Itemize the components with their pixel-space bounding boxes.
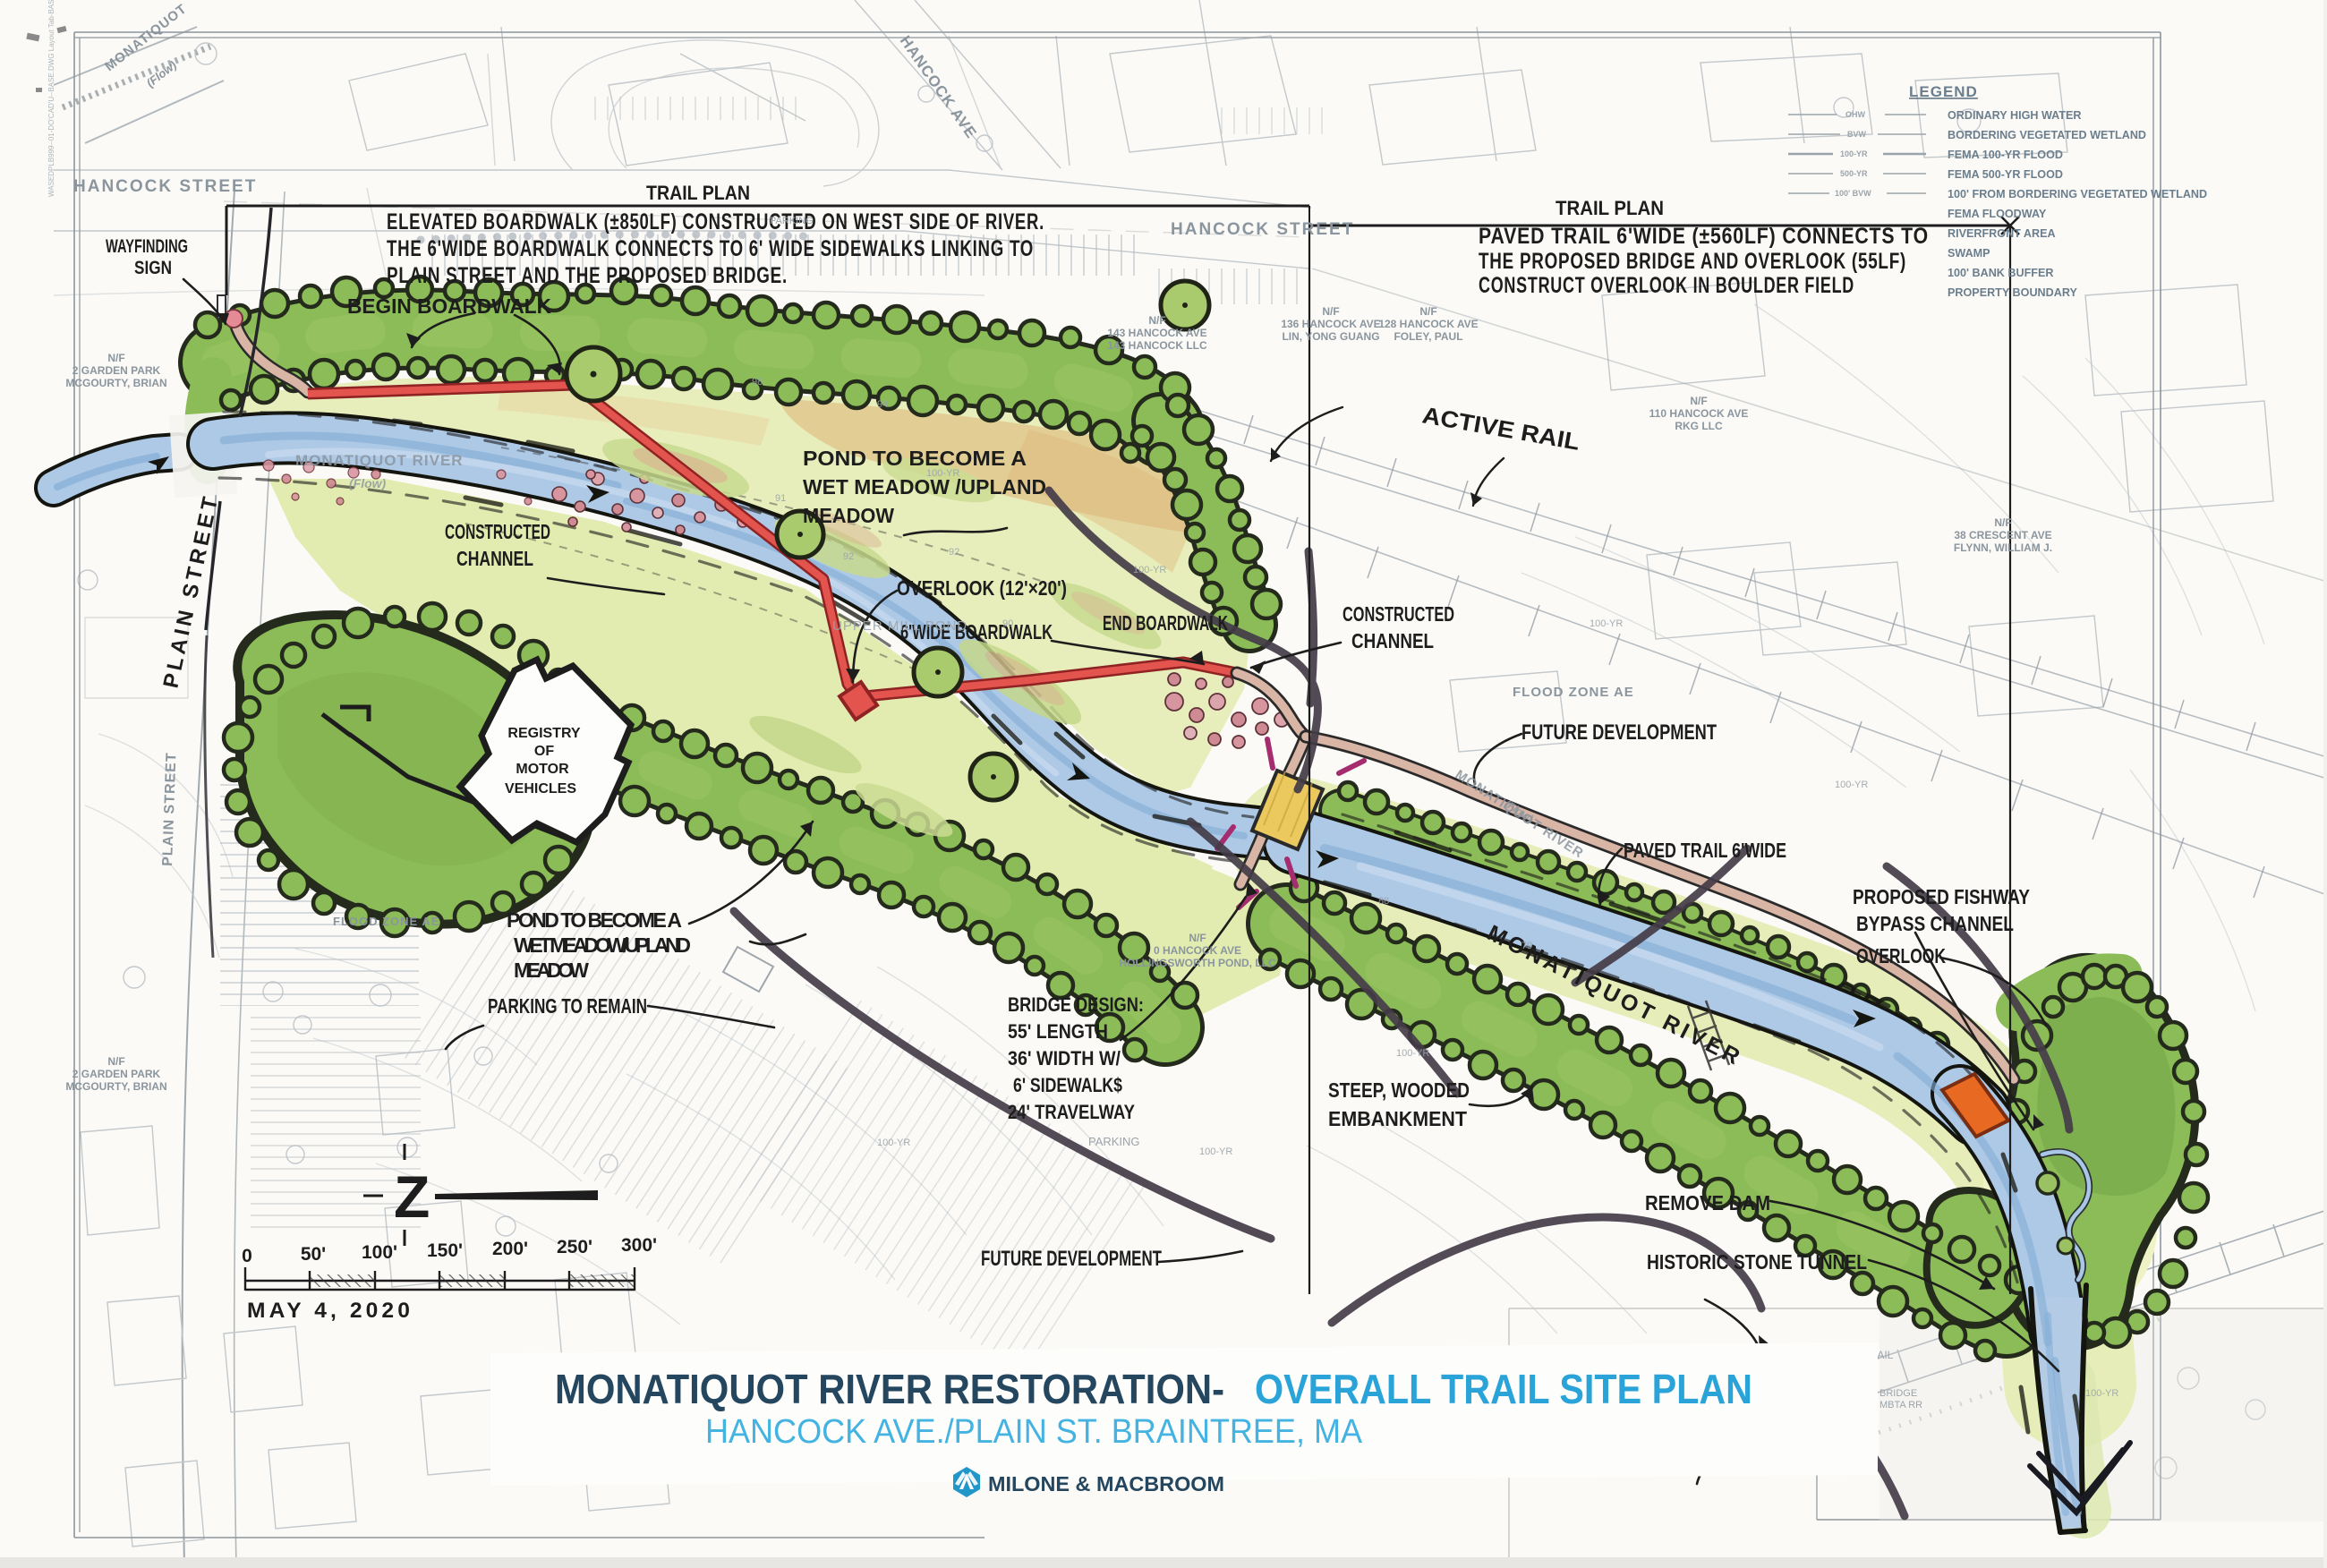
svg-text:100' BVW: 100' BVW xyxy=(1835,189,1871,198)
svg-text:100-YR: 100-YR xyxy=(1199,1146,1232,1157)
svg-text:N/F: N/F xyxy=(1148,314,1165,327)
svg-text:N/F: N/F xyxy=(107,352,124,364)
svg-text:BRIDGE DESIGN:: BRIDGE DESIGN: xyxy=(1008,993,1144,1016)
svg-text:FUTURE DEVELOPMENT: FUTURE DEVELOPMENT xyxy=(1521,720,1717,745)
svg-text:100-YR: 100-YR xyxy=(877,1138,910,1148)
svg-text:CONSTRUCT OVERLOOK IN BOULDER: CONSTRUCT OVERLOOK IN BOULDER FIELD xyxy=(1479,273,1854,298)
svg-text:136 HANCOCK AVE: 136 HANCOCK AVE xyxy=(1281,318,1380,330)
svg-text:143 HANCOCK LLC: 143 HANCOCK LLC xyxy=(1107,339,1207,352)
svg-text:POND TO BECOME A: POND TO BECOME A xyxy=(803,447,1027,470)
svg-text:2 GARDEN PARK: 2 GARDEN PARK xyxy=(72,364,161,377)
svg-text:100': 100' xyxy=(362,1242,397,1263)
svg-text:36' WIDTH W/: 36' WIDTH W/ xyxy=(1008,1047,1121,1069)
svg-text:TRAIL PLAN: TRAIL PLAN xyxy=(1556,197,1664,219)
svg-text:N/F: N/F xyxy=(1189,932,1206,944)
svg-text:98: 98 xyxy=(752,377,763,388)
svg-text:N/F: N/F xyxy=(107,1055,124,1068)
svg-text:PROPERTY BOUNDARY: PROPERTY BOUNDARY xyxy=(1948,286,2077,299)
svg-text:WET MEADOW /UPLAND: WET MEADOW /UPLAND xyxy=(803,475,1046,499)
svg-text:100-YR: 100-YR xyxy=(1835,780,1868,790)
svg-text:100' FROM BORDERING VEGETATED: 100' FROM BORDERING VEGETATED WETLAND xyxy=(1948,188,2207,200)
svg-text:HANCOCK STREET: HANCOCK STREET xyxy=(73,177,257,196)
svg-text:N/F: N/F xyxy=(1419,305,1436,318)
svg-text:55' LENGTH: 55' LENGTH xyxy=(1008,1020,1108,1043)
svg-text:RIVERFRONT AREA: RIVERFRONT AREA xyxy=(1948,227,2056,240)
svg-text:ORDINARY HIGH WATER: ORDINARY HIGH WATER xyxy=(1948,109,2082,122)
svg-text:MCGOURTY, BRIAN: MCGOURTY, BRIAN xyxy=(65,1080,166,1093)
svg-text:HANCOCK STREET: HANCOCK STREET xyxy=(1171,220,1354,239)
svg-text:100-YR: 100-YR xyxy=(926,468,959,479)
svg-text:88: 88 xyxy=(1378,896,1389,907)
svg-text:94: 94 xyxy=(877,399,888,410)
svg-text:110 HANCOCK AVE: 110 HANCOCK AVE xyxy=(1649,407,1749,420)
svg-text:143 HANCOCK AVE: 143 HANCOCK AVE xyxy=(1107,327,1206,339)
svg-text:LEGEND: LEGEND xyxy=(1909,83,1978,100)
svg-text:RKG LLC: RKG LLC xyxy=(1675,420,1723,432)
svg-text:PROPOSED FISHWAY: PROPOSED FISHWAY xyxy=(1853,885,2030,908)
svg-text:300': 300' xyxy=(621,1235,657,1256)
svg-text:38 CRESCENT AVE: 38 CRESCENT AVE xyxy=(1954,529,2051,541)
svg-text:REGISTRY: REGISTRY xyxy=(507,726,581,741)
svg-text:100-YR: 100-YR xyxy=(1590,618,1623,629)
svg-text:0 HANCOCK AVE: 0 HANCOCK AVE xyxy=(1154,944,1241,957)
svg-text:500-YR: 500-YR xyxy=(1840,169,1868,178)
svg-text:BORDERING VEGETATED WETLAND: BORDERING VEGETATED WETLAND xyxy=(1948,129,2146,141)
svg-text:PAVED TRAIL 6'WIDE: PAVED TRAIL 6'WIDE xyxy=(1624,839,1786,862)
svg-text:2 GARDEN PARK: 2 GARDEN PARK xyxy=(72,1068,161,1080)
svg-text:128 HANCOCK AVE: 128 HANCOCK AVE xyxy=(1378,318,1478,330)
svg-text:WASEDPLB999--01-DO'CAD'U--BASE: WASEDPLB999--01-DO'CAD'U--BASE.DWG Layou… xyxy=(47,0,55,197)
svg-text:N/F: N/F xyxy=(1322,305,1339,318)
svg-text:FEMA 500-YR FLOOD: FEMA 500-YR FLOOD xyxy=(1948,168,2063,181)
svg-text:Z: Z xyxy=(394,1163,430,1230)
svg-text:100-YR: 100-YR xyxy=(1396,1048,1429,1059)
svg-text:100' BANK BUFFER: 100' BANK BUFFER xyxy=(1948,267,2053,279)
svg-text:FLOOD ZONE AE: FLOOD ZONE AE xyxy=(333,915,439,928)
svg-text:MCGOURTY, BRIAN: MCGOURTY, BRIAN xyxy=(65,377,166,389)
svg-text:90: 90 xyxy=(1002,618,1013,629)
svg-text:OHW: OHW xyxy=(1845,110,1866,119)
svg-text:ELEVATED BOARDWALK (±850LF) CO: ELEVATED BOARDWALK (±850LF) CONSTRUCTED … xyxy=(387,209,1044,234)
svg-text:END BOARDWALK: END BOARDWALK xyxy=(1103,611,1228,635)
svg-text:UPPER MILL POND: UPPER MILL POND xyxy=(832,618,967,634)
svg-text:6' SIDEWALK$: 6' SIDEWALK$ xyxy=(1013,1074,1122,1096)
svg-text:FLOOD ZONE AE: FLOOD ZONE AE xyxy=(1513,685,1634,700)
svg-text:50': 50' xyxy=(301,1244,326,1265)
svg-text:92: 92 xyxy=(949,547,959,558)
svg-text:SIGN: SIGN xyxy=(134,258,172,278)
svg-text:(Flow): (Flow) xyxy=(349,476,387,490)
svg-text:MONATIQUOT RIVER: MONATIQUOT RIVER xyxy=(295,452,464,469)
svg-text:THE 6'WIDE BOARDWALK CONNECTS: THE 6'WIDE BOARDWALK CONNECTS TO 6' WIDE… xyxy=(387,236,1034,261)
svg-text:N/F: N/F xyxy=(1690,395,1707,407)
svg-text:FOLEY, PAUL: FOLEY, PAUL xyxy=(1394,330,1462,343)
svg-text:OVERLOOK: OVERLOOK xyxy=(1856,944,1946,967)
svg-text:PLAIN STREET AND THE PROPOSED: PLAIN STREET AND THE PROPOSED BRIDGE. xyxy=(387,263,788,288)
svg-text:OVERALL TRAIL SITE PLAN: OVERALL TRAIL SITE PLAN xyxy=(1255,1366,1752,1412)
svg-text:79: 79 xyxy=(1521,941,1532,951)
svg-text:24' TRAVELWAY: 24' TRAVELWAY xyxy=(1008,1101,1135,1123)
svg-text:STEEP, WOODED: STEEP, WOODED xyxy=(1328,1078,1470,1102)
svg-text:PARKING: PARKING xyxy=(1088,1135,1140,1148)
svg-text:MBTA RR: MBTA RR xyxy=(1879,1400,1922,1410)
svg-text:MILONE & MACBROOM: MILONE & MACBROOM xyxy=(988,1472,1224,1496)
svg-text:CHANNEL: CHANNEL xyxy=(456,547,533,570)
svg-text:FEMA FLOODWAY: FEMA FLOODWAY xyxy=(1948,208,2047,220)
svg-text:REMOVE DAM: REMOVE DAM xyxy=(1645,1191,1770,1214)
svg-text:PAVED TRAIL 6'WIDE (±560LF) CO: PAVED TRAIL 6'WIDE (±560LF) CONNECTS TO xyxy=(1479,224,1929,249)
svg-text:N/F: N/F xyxy=(1994,516,2011,529)
svg-text:250': 250' xyxy=(557,1237,592,1257)
svg-text:100-YR: 100-YR xyxy=(2085,1388,2118,1399)
svg-text:EMBANKMENT: EMBANKMENT xyxy=(1328,1107,1467,1130)
svg-text:FUTURE DEVELOPMENT: FUTURE DEVELOPMENT xyxy=(981,1247,1162,1271)
svg-text:MONATIQUOT RIVER RESTORATION-: MONATIQUOT RIVER RESTORATION- xyxy=(555,1366,1224,1412)
svg-text:LIN, YONG GUANG: LIN, YONG GUANG xyxy=(1282,330,1379,343)
svg-text:VEHICLES: VEHICLES xyxy=(505,781,576,797)
svg-text:OF: OF xyxy=(534,744,554,759)
svg-text:BEGIN BOARDWALK: BEGIN BOARDWALK xyxy=(347,294,551,318)
svg-text:PARKING: PARKING xyxy=(770,216,814,226)
svg-text:BYPASS CHANNEL: BYPASS CHANNEL xyxy=(1856,912,2014,935)
svg-text:HOLLINGSWORTH POND, LLC: HOLLINGSWORTH POND, LLC xyxy=(1119,957,1276,969)
svg-text:150': 150' xyxy=(427,1240,463,1261)
svg-text:MEADOW: MEADOW xyxy=(514,959,589,982)
svg-text:POND TO BECOME A: POND TO BECOME A xyxy=(507,908,682,932)
svg-text:CONSTRUCTED: CONSTRUCTED xyxy=(445,520,550,543)
svg-text:91: 91 xyxy=(775,493,786,504)
svg-text:100-YR: 100-YR xyxy=(1840,149,1868,158)
svg-text:TRAIL PLAN: TRAIL PLAN xyxy=(646,182,750,204)
svg-text:SWAMP: SWAMP xyxy=(1948,247,1990,260)
svg-text:BVW: BVW xyxy=(1847,130,1867,139)
svg-text:FEMA 100-YR FLOOD: FEMA 100-YR FLOOD xyxy=(1948,149,2063,161)
svg-text:WET MEADOW/UPLAND: WET MEADOW/UPLAND xyxy=(514,933,691,957)
svg-text:0: 0 xyxy=(242,1246,252,1266)
svg-text:100-YR: 100-YR xyxy=(1133,565,1166,575)
svg-text:OVERLOOK (12'×20'): OVERLOOK (12'×20') xyxy=(897,576,1067,600)
svg-text:CONSTRUCTED: CONSTRUCTED xyxy=(1342,602,1454,626)
svg-text:HISTORIC STONE TUNNEL: HISTORIC STONE TUNNEL xyxy=(1647,1250,1867,1274)
svg-text:PARKING TO REMAIN: PARKING TO REMAIN xyxy=(488,994,647,1018)
svg-text:MEADOW: MEADOW xyxy=(803,504,894,527)
svg-text:THE PROPOSED BRIDGE AND OVERL: THE PROPOSED BRIDGE AND OVERLOOK (55LF) xyxy=(1479,249,1906,274)
svg-text:MAY 4, 2020: MAY 4, 2020 xyxy=(247,1299,413,1323)
svg-text:WAYFINDING: WAYFINDING xyxy=(106,236,188,257)
svg-text:BRIDGE: BRIDGE xyxy=(1879,1388,1917,1399)
svg-text:HANCOCK AVE./PLAIN ST. BRAINT: HANCOCK AVE./PLAIN ST. BRAINTREE, MA xyxy=(705,1413,1363,1451)
svg-text:FLYNN, WILLIAM J.: FLYNN, WILLIAM J. xyxy=(1954,541,2052,554)
svg-text:MOTOR: MOTOR xyxy=(516,762,569,777)
svg-text:200': 200' xyxy=(492,1239,528,1259)
svg-text:CHANNEL: CHANNEL xyxy=(1351,629,1434,652)
svg-text:92: 92 xyxy=(843,551,854,562)
